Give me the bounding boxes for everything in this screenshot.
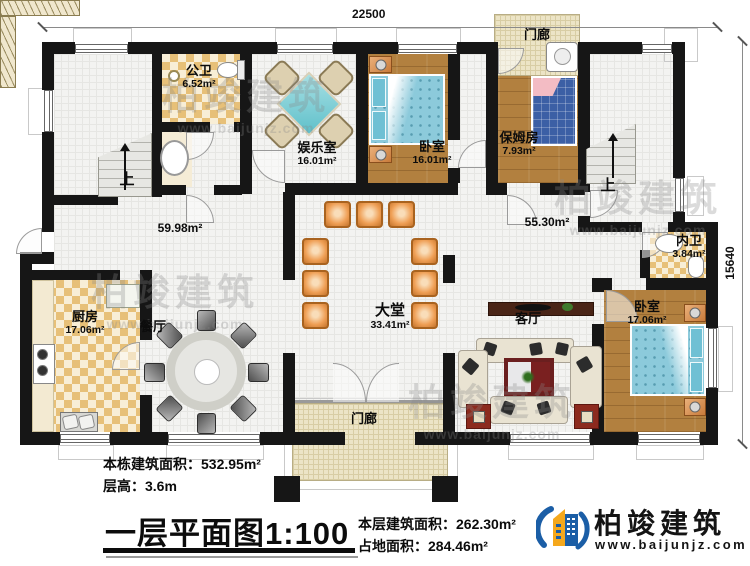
- door-arc: [16, 228, 42, 254]
- info-left: 本栋建筑面积：532.95m² 层高：3.6m: [103, 453, 261, 498]
- washer-drum: [554, 48, 571, 65]
- end-table: [574, 404, 599, 429]
- logo-website: www.baijunjz.com: [595, 537, 747, 552]
- wall: [128, 42, 277, 54]
- info-right: 本层建筑面积：262.30m² 占地面积：284.46m²: [358, 514, 516, 557]
- wall: [673, 54, 685, 178]
- nightstand: [684, 304, 706, 322]
- shower-head: [168, 70, 180, 82]
- hall-chair: [302, 238, 329, 265]
- fridge: [106, 284, 140, 308]
- window: [638, 434, 700, 443]
- sofa-left: [458, 350, 488, 408]
- nightstand: [369, 56, 392, 73]
- building-area-line: 本栋建筑面积：532.95m²: [103, 453, 261, 475]
- wall: [283, 192, 295, 280]
- hall-chair: [411, 302, 438, 329]
- wall: [152, 122, 210, 132]
- window: [75, 44, 128, 53]
- wardrobe: [0, 0, 80, 16]
- nightstand: [369, 146, 392, 163]
- dining-table-center: [194, 359, 220, 385]
- hall-chair: [411, 238, 438, 265]
- room-label-bedroom-top: 卧室 16.01m²: [412, 140, 451, 166]
- wall: [673, 212, 685, 222]
- nightstand: [684, 398, 706, 416]
- window: [277, 44, 333, 53]
- window-bay: [687, 176, 704, 216]
- dimension-line-right: [742, 42, 743, 445]
- stairs-arrow: [612, 136, 614, 178]
- room-label-porch-top: 门廊: [524, 28, 550, 43]
- window-bay: [73, 28, 132, 45]
- bed-nanny-blanket: [533, 78, 575, 96]
- wall: [448, 54, 460, 140]
- wall: [486, 42, 498, 183]
- wall: [152, 185, 186, 195]
- hall-chair: [356, 201, 383, 228]
- room-label-public-bath: 公卫 6.52m²: [182, 64, 215, 90]
- window: [168, 434, 260, 443]
- stairs-arrow-head: [608, 128, 618, 141]
- wall: [486, 183, 507, 195]
- logo-building-icon: [536, 500, 590, 559]
- bed-sheet-fold: [388, 76, 426, 143]
- wall: [578, 216, 590, 232]
- wall: [443, 353, 455, 438]
- dining-chair: [144, 363, 165, 382]
- wall: [110, 432, 168, 445]
- window-bay: [636, 445, 704, 460]
- hall-chair: [324, 201, 351, 228]
- area-label-hall-left: 59.98m²: [158, 222, 203, 235]
- wall: [448, 168, 460, 183]
- toilet: [217, 62, 239, 78]
- window: [44, 90, 53, 132]
- room-label-game-room: 娱乐室 16.01m²: [297, 141, 336, 167]
- wash-basin: [160, 140, 189, 176]
- hall-chair: [302, 302, 329, 329]
- room-label-inner-bath: 内卫 3.84m²: [672, 234, 705, 260]
- room-label-porch-bottom: 门廊: [351, 412, 377, 427]
- logo-company-name: 柏竣建筑: [594, 502, 726, 542]
- plan-title-scale: 1:100: [265, 516, 349, 551]
- floor-height-line: 层高：3.6m: [103, 475, 261, 497]
- room-label-bedroom-right: 卧室 17.06m²: [627, 300, 666, 326]
- stairs-up-label-left: 上: [119, 172, 134, 189]
- wardrobe: [0, 16, 16, 88]
- wall: [356, 54, 368, 183]
- dining-chair: [197, 310, 216, 331]
- window-bay: [396, 28, 461, 45]
- toilet-tank: [237, 60, 245, 80]
- title-underline-thick: [103, 548, 355, 553]
- pillow: [690, 362, 703, 392]
- land-area-line: 占地面积：284.46m²: [358, 536, 516, 558]
- wall: [590, 432, 638, 445]
- window: [642, 44, 672, 53]
- sofa-pillow: [555, 342, 569, 356]
- stairs-up-label-right: 上: [600, 178, 615, 195]
- room-label-living-room: 客厅: [515, 312, 541, 327]
- wall: [42, 132, 54, 232]
- company-logo: 柏竣建筑 www.baijunjz.com: [536, 500, 746, 558]
- wall: [285, 183, 458, 195]
- window-bay: [508, 445, 594, 460]
- floor-area-line: 本层建筑面积：262.30m²: [358, 514, 516, 536]
- wall: [140, 395, 152, 432]
- hall-chair: [411, 270, 438, 297]
- porch-column: [432, 476, 458, 502]
- wall: [443, 255, 455, 283]
- wall: [646, 278, 718, 290]
- wall: [32, 270, 120, 280]
- wall: [333, 42, 398, 54]
- title-underline-thin: [106, 556, 358, 558]
- bed-sheet-fold: [652, 326, 688, 394]
- pillow: [372, 78, 386, 107]
- wall: [668, 222, 718, 232]
- sofa-pillow: [529, 342, 543, 356]
- pillow: [372, 111, 386, 140]
- window-bay: [28, 88, 45, 135]
- wall: [260, 432, 345, 445]
- floor-plan-page: { "plan": { "dim_top": "22500", "dim_rig…: [0, 0, 750, 566]
- dining-chair: [248, 363, 269, 382]
- window: [708, 328, 717, 388]
- stairs-arrow-head: [120, 138, 130, 151]
- wall: [672, 42, 685, 54]
- plan-title: 一层平面图1:100: [105, 508, 349, 553]
- stove-burner: [38, 350, 47, 359]
- room-label-hall: 大堂 33.41m²: [370, 303, 409, 332]
- dimension-line-top: [42, 27, 718, 28]
- wall: [42, 42, 54, 90]
- wall: [283, 353, 295, 438]
- hall-chair: [302, 270, 329, 297]
- end-table: [466, 404, 491, 429]
- window-bay: [275, 28, 337, 45]
- dimension-top-value: 22500: [352, 7, 385, 21]
- window: [675, 178, 684, 212]
- wall: [214, 185, 242, 195]
- stove-burner: [38, 366, 47, 375]
- room-label-kitchen: 厨房 17.06m²: [65, 310, 104, 336]
- wall: [592, 278, 604, 292]
- coffee-table-plant: [521, 370, 535, 384]
- room-label-nanny-room: 保姆房 7.93m²: [499, 131, 538, 157]
- porch-column: [274, 476, 300, 502]
- dining-chair: [197, 413, 216, 434]
- wall: [20, 252, 32, 445]
- plant-small: [562, 303, 573, 311]
- wall: [415, 432, 510, 445]
- hall-chair: [388, 201, 415, 228]
- pillow: [690, 328, 703, 358]
- area-label-hall-right: 55.30m²: [525, 216, 570, 229]
- room-label-dining: 餐厅: [140, 320, 166, 335]
- window-bay: [718, 326, 733, 392]
- window: [60, 434, 110, 443]
- dimension-right-value: 15640: [723, 233, 737, 293]
- wall: [700, 432, 718, 445]
- tv: [515, 304, 551, 311]
- plan-title-name: 一层平面图: [105, 516, 265, 551]
- window: [510, 434, 590, 443]
- window: [398, 44, 457, 53]
